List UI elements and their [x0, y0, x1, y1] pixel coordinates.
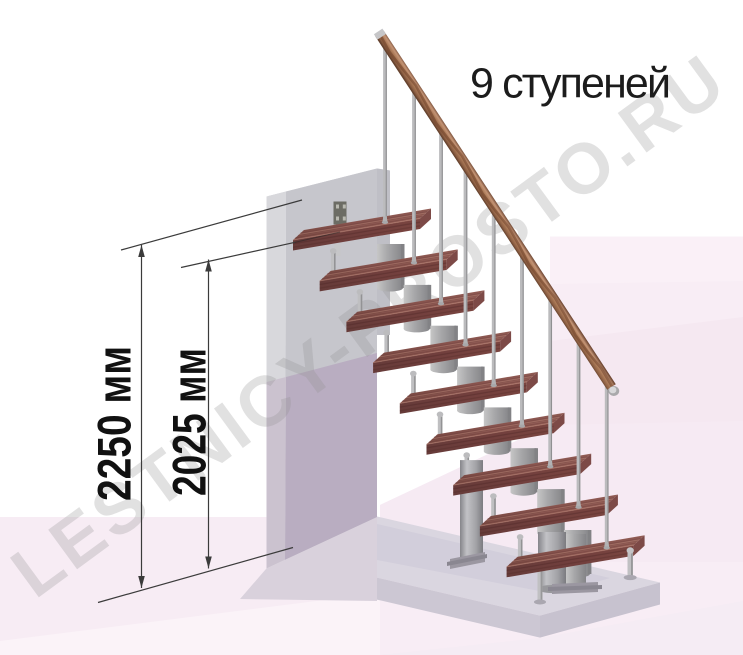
svg-text:9 ступеней: 9 ступеней [470, 60, 671, 108]
svg-text:2025 мм: 2025 мм [163, 348, 216, 496]
svg-text:2250 мм: 2250 мм [88, 346, 141, 501]
